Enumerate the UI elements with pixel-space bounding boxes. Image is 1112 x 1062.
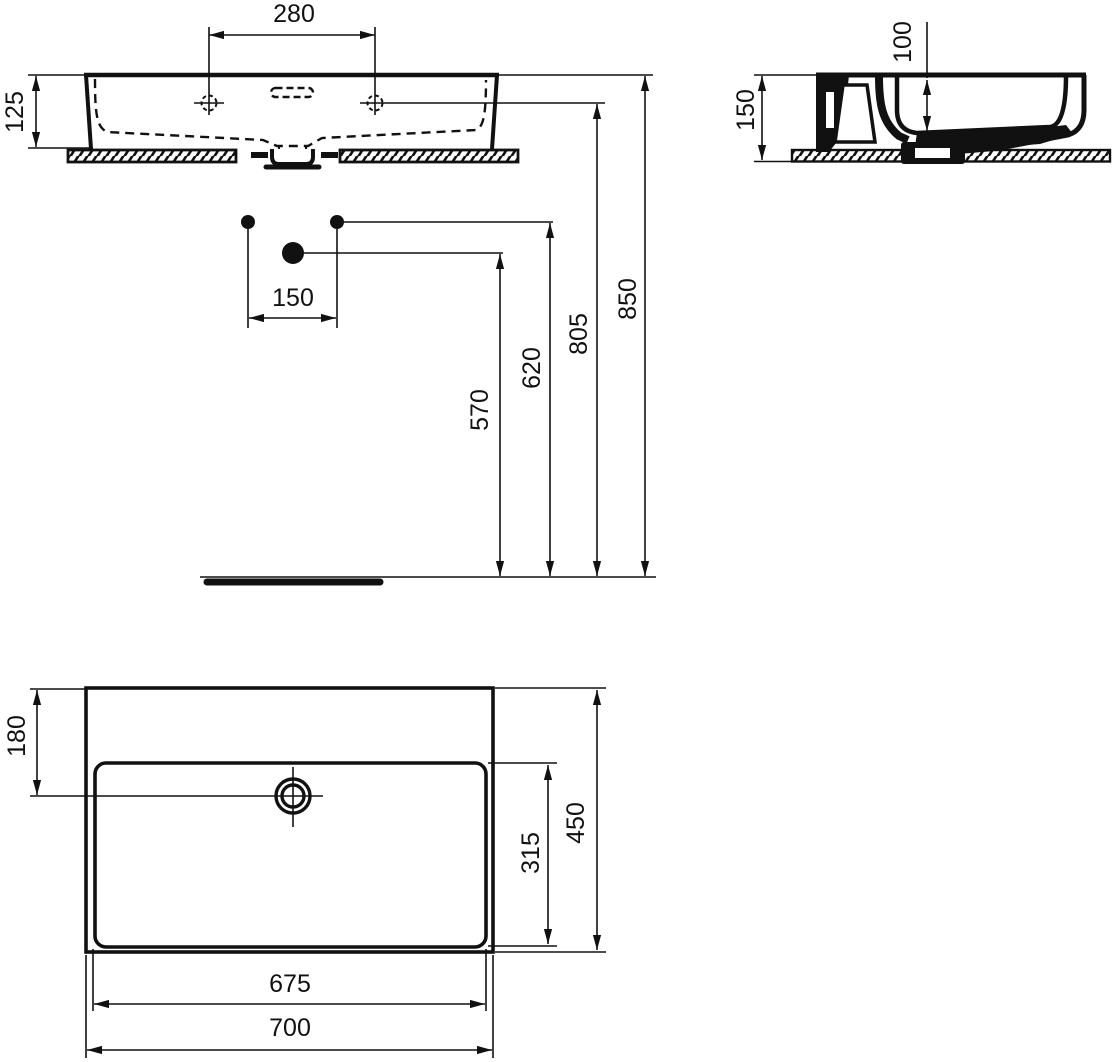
supply-point-left [241, 215, 255, 229]
technical-drawing-page: 280 125 150 100 [0, 0, 1112, 1062]
front-basin-left-wall [86, 75, 91, 149]
plan-bowl-outline [95, 763, 486, 947]
dim-bowl-depth-label: 100 [889, 21, 917, 63]
side-view: 150 100 [732, 21, 1110, 164]
tap-hole-right [360, 96, 605, 111]
dim-tap-spacing-label: 280 [273, 0, 315, 28]
dim-width-label: 700 [269, 1014, 311, 1042]
dim-drain-height-label: 570 [466, 389, 494, 431]
drain-point [282, 242, 304, 264]
side-left-slot [826, 92, 834, 128]
side-tap-deck [835, 85, 875, 142]
side-drain [901, 142, 965, 164]
plan-outer-outline [86, 688, 493, 952]
dim-rim-height-label: 850 [614, 278, 642, 320]
dim-side-height-label: 150 [732, 89, 760, 131]
dim-supply-spacing-label: 150 [272, 284, 314, 312]
dim-depth-label: 450 [562, 802, 590, 844]
supply-point-right [330, 215, 344, 229]
overflow-slot [271, 88, 313, 97]
washbasin-technical-drawing: 280 125 150 100 [0, 0, 1112, 1062]
dim-bowl-width-label: 675 [269, 970, 311, 998]
side-bowl-profile [897, 76, 1066, 133]
front-basin-right-wall [492, 75, 497, 149]
dim-bowl-inner-depth-label: 315 [517, 832, 545, 874]
front-drain-trap [251, 149, 338, 167]
front-view: 280 125 [1, 0, 605, 167]
plan-drain [30, 767, 323, 827]
dim-drain-offset-label: 180 [3, 715, 31, 757]
plan-view: 180 450 315 675 700 [3, 688, 606, 1058]
dim-basin-height-label: 125 [1, 91, 29, 133]
dim-supply-height-label: 620 [518, 347, 546, 389]
dim-tap-level-label: 805 [565, 313, 593, 355]
